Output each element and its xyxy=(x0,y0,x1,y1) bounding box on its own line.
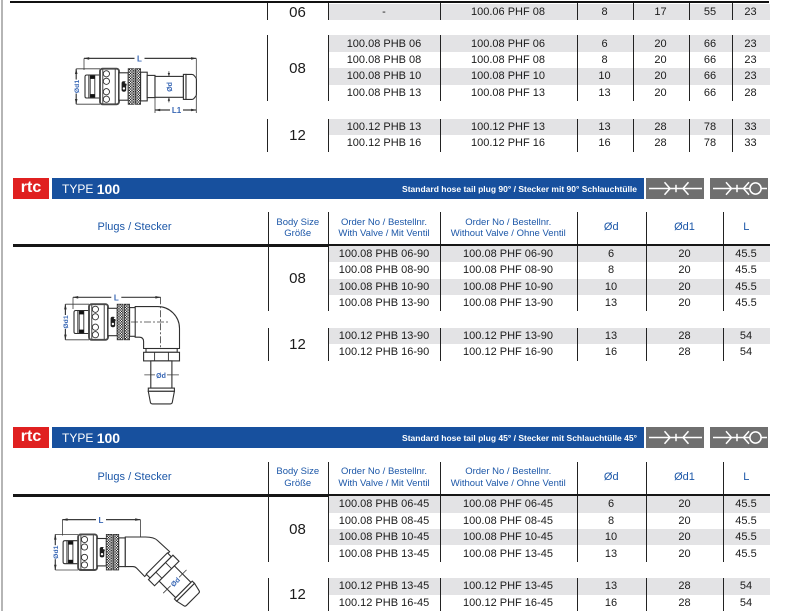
svg-text:Ød1: Ød1 xyxy=(74,80,81,93)
svg-text:Ød: Ød xyxy=(167,82,174,92)
svg-text:L1: L1 xyxy=(172,106,182,115)
svg-text:Ød1: Ød1 xyxy=(53,545,60,558)
svg-text:Ød: Ød xyxy=(156,373,166,380)
svg-text:Ød1: Ød1 xyxy=(63,315,70,328)
svg-text:L: L xyxy=(137,55,142,64)
svg-text:L: L xyxy=(99,516,104,525)
svg-text:L: L xyxy=(114,294,119,303)
